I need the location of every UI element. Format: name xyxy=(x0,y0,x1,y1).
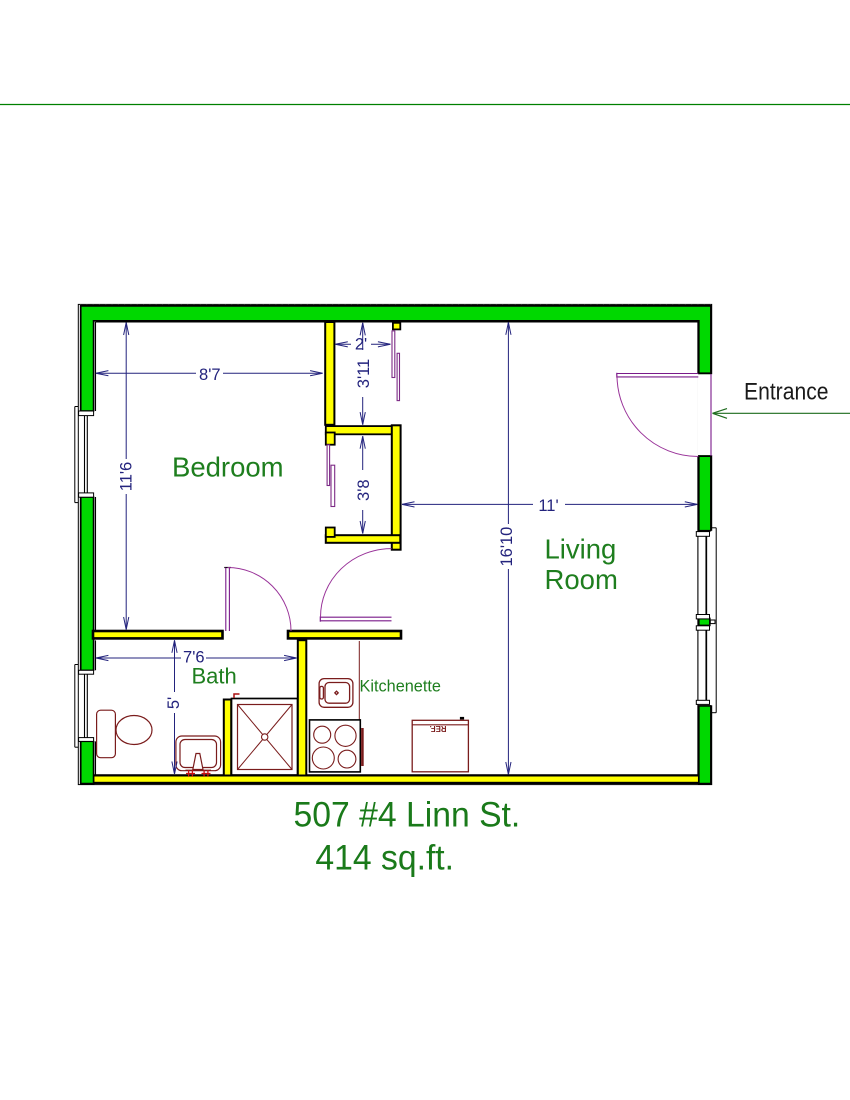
svg-text:3'11: 3'11 xyxy=(355,359,373,388)
svg-text:Room: Room xyxy=(545,564,618,595)
svg-text:5': 5' xyxy=(165,697,183,709)
svg-text:8'7: 8'7 xyxy=(199,366,221,384)
svg-text:Bedroom: Bedroom xyxy=(172,452,284,483)
svg-text:11'6: 11'6 xyxy=(117,462,135,491)
svg-text:Kitchenette: Kitchenette xyxy=(360,678,441,696)
svg-text:16'10: 16'10 xyxy=(498,527,516,567)
svg-text:3'8: 3'8 xyxy=(355,479,373,501)
svg-text:Bath: Bath xyxy=(192,663,237,688)
svg-text:2': 2' xyxy=(355,336,367,354)
svg-text:507 #4 Linn St.: 507 #4 Linn St. xyxy=(294,796,521,835)
svg-text:11': 11' xyxy=(538,497,558,515)
svg-text:Living: Living xyxy=(545,534,617,565)
svg-text:Entrance: Entrance xyxy=(744,378,828,405)
svg-text:REF.: REF. xyxy=(430,724,447,733)
svg-text:414 sq.ft.: 414 sq.ft. xyxy=(315,839,454,878)
